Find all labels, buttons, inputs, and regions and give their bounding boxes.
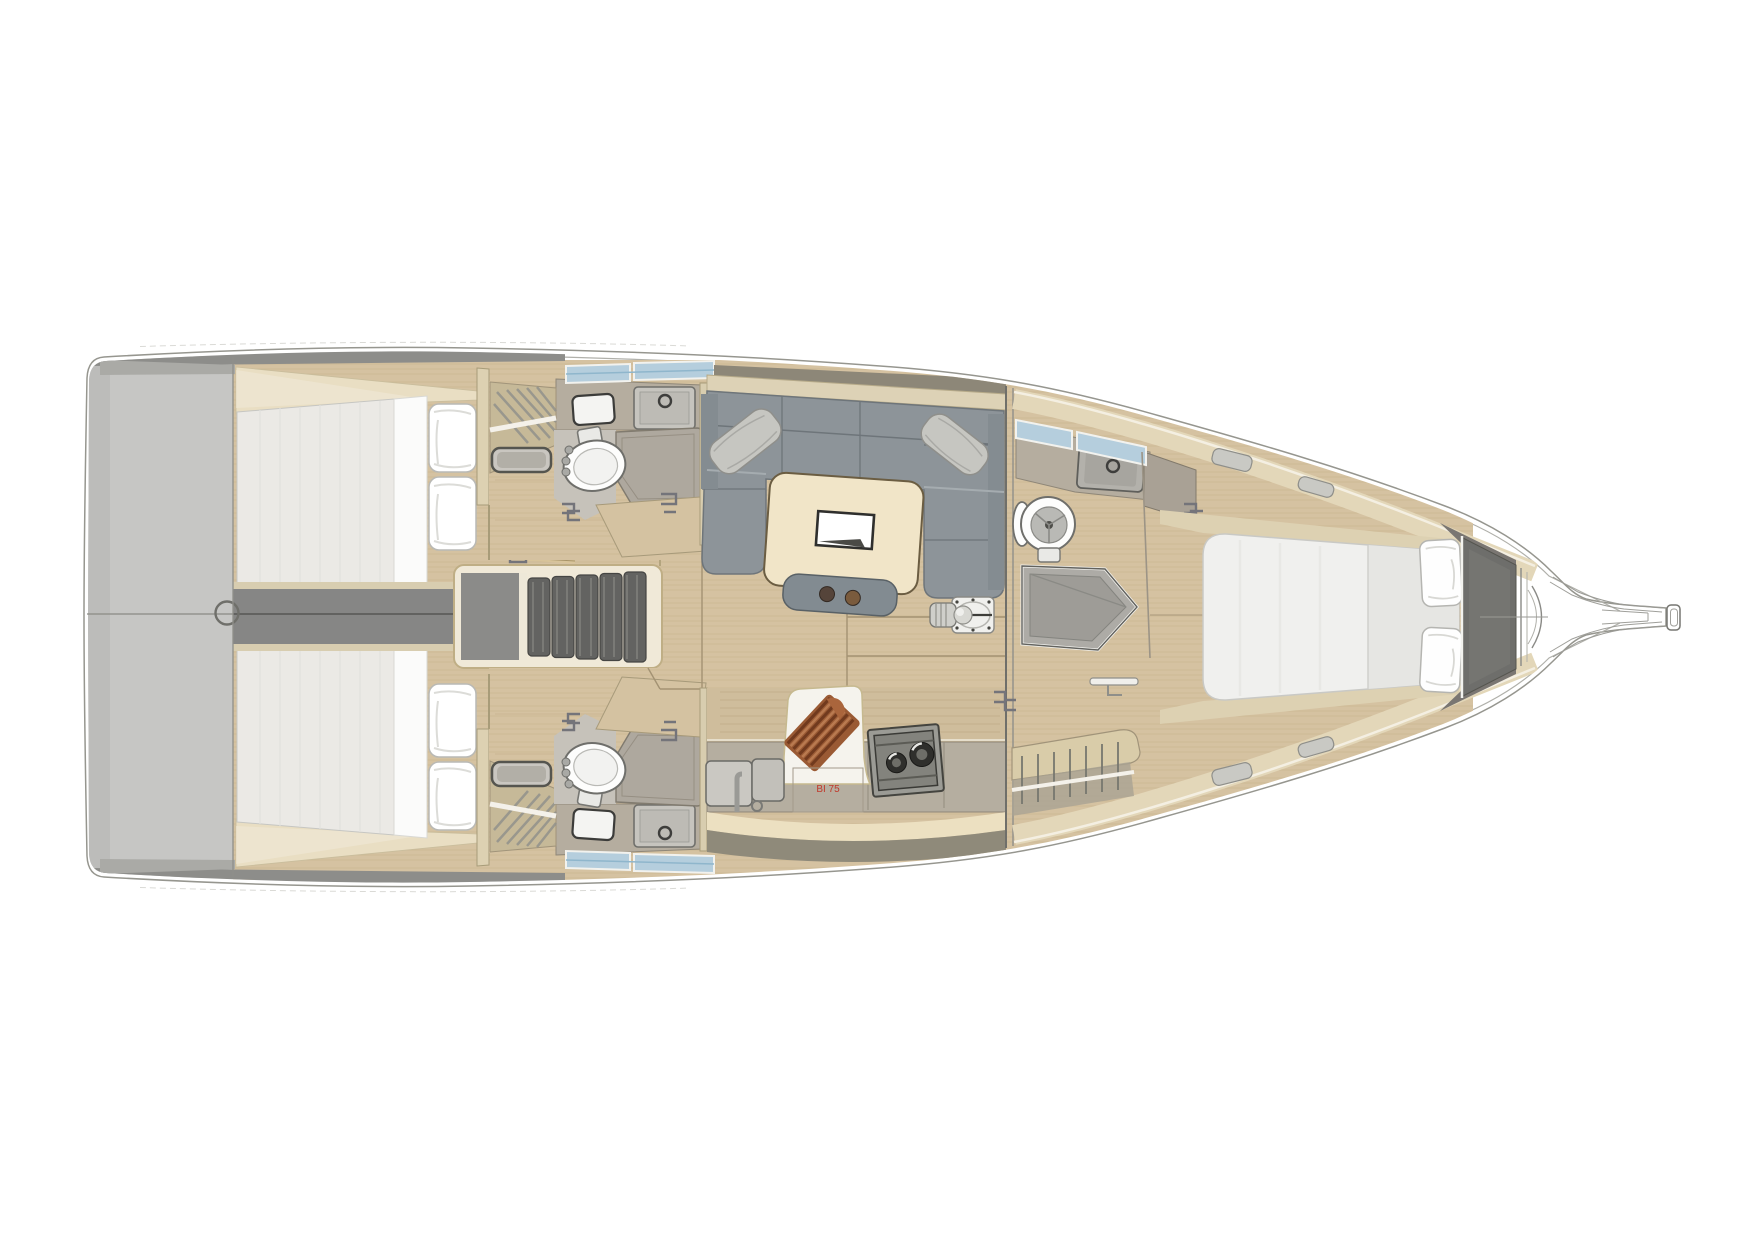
svg-text:BI 75: BI 75 [816,784,840,795]
